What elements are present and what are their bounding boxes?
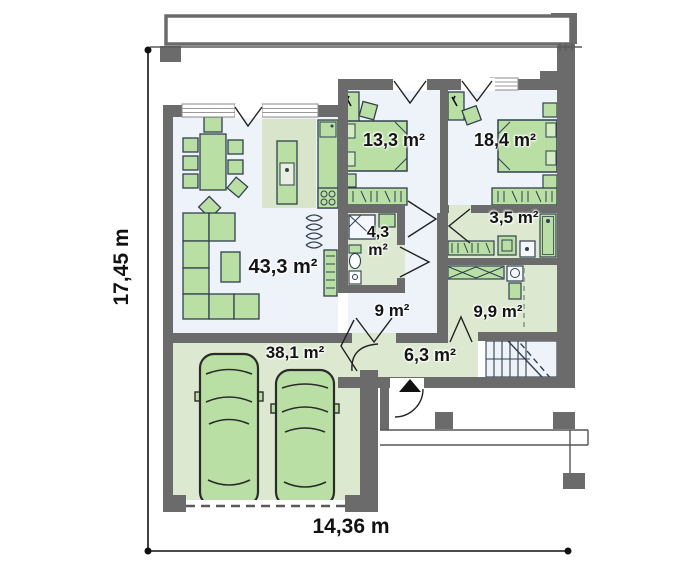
window-icon bbox=[262, 104, 318, 117]
floor-plan-drawing bbox=[0, 0, 700, 575]
stairs-icon bbox=[486, 336, 557, 381]
room-label-corridor: 9 m² bbox=[352, 301, 432, 321]
terrace bbox=[150, 16, 582, 51]
room-label-garage: 38,1 m² bbox=[250, 343, 340, 363]
wardrobe-icon bbox=[448, 266, 504, 279]
floor-plan: 43,3 m² 38,1 m² 13,3 m² 18,4 m² 4,3 m² 3… bbox=[0, 0, 700, 575]
nightstand-icon bbox=[543, 103, 557, 117]
garage-door bbox=[186, 500, 345, 512]
room-label-bathroom1: 4,3 m² bbox=[356, 224, 400, 261]
window-icon bbox=[182, 104, 235, 117]
room-label-vestibule: 6,3 m² bbox=[385, 345, 475, 366]
sink-icon bbox=[498, 236, 516, 255]
dimension-height-label: 17,45 m bbox=[110, 207, 134, 327]
wardrobe-icon bbox=[341, 188, 407, 205]
nightstand-icon bbox=[543, 175, 557, 189]
vacuum-icon bbox=[509, 283, 521, 299]
kitchen-island-icon bbox=[277, 141, 297, 204]
room-label-hall: 9,9 m² bbox=[448, 302, 548, 322]
door-arc bbox=[395, 389, 423, 417]
wardrobe-icon bbox=[492, 188, 557, 205]
porch-steps bbox=[380, 430, 588, 473]
room-label-bedroom1: 13,3 m² bbox=[348, 130, 440, 151]
room-label-living: 43,3 m² bbox=[238, 256, 328, 279]
desk-icon bbox=[448, 92, 464, 120]
stove-icon bbox=[318, 188, 338, 208]
car-icon bbox=[271, 370, 339, 506]
room-label-bathroom2: 3,5 m² bbox=[470, 208, 558, 228]
room-label-bedroom2: 18,4 m² bbox=[452, 130, 558, 151]
sink-icon bbox=[349, 271, 361, 284]
entrance-door bbox=[390, 378, 424, 417]
radiator-icon bbox=[448, 241, 494, 255]
car-icon bbox=[195, 354, 263, 506]
chair-icon bbox=[359, 101, 377, 119]
dimension-width-label: 14,36 m bbox=[281, 515, 421, 539]
